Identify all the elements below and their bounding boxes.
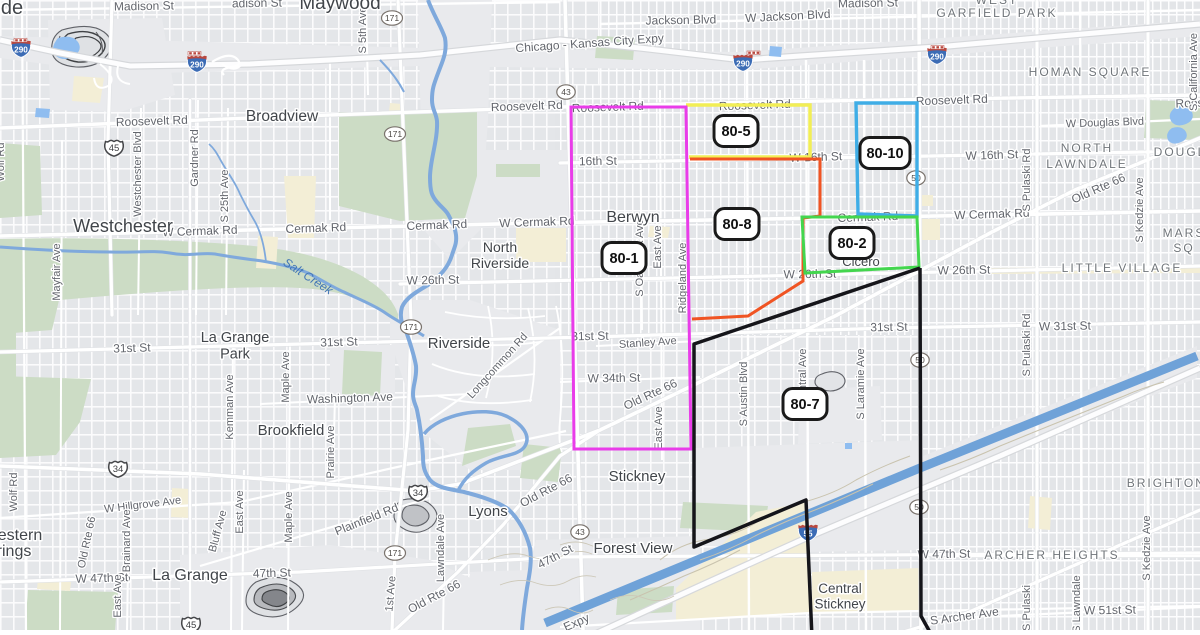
svg-text:W 47th St: W 47th St [917, 547, 971, 562]
svg-text:80-7: 80-7 [790, 397, 819, 413]
svg-text:W 31st St: W 31st St [1039, 319, 1092, 334]
svg-text:W 51st St: W 51st St [1084, 603, 1137, 618]
svg-text:GARFIELD PARK: GARFIELD PARK [936, 6, 1057, 20]
svg-text:Central: Central [818, 581, 862, 596]
svg-text:31st St: 31st St [113, 340, 151, 355]
svg-text:31st St: 31st St [571, 329, 609, 344]
svg-text:HOMAN SQUARE: HOMAN SQUARE [1029, 65, 1152, 79]
svg-text:43: 43 [561, 87, 571, 97]
svg-text:290: 290 [736, 60, 750, 69]
svg-text:Madison St: Madison St [114, 0, 175, 14]
svg-text:S Lawndale: S Lawndale [1071, 575, 1083, 630]
svg-text:31st St: 31st St [870, 320, 908, 335]
svg-text:East Ave: East Ave [653, 406, 665, 449]
svg-text:171: 171 [404, 322, 419, 332]
svg-text:La Grange: La Grange [152, 567, 228, 584]
svg-text:Cermak Rd: Cermak Rd [406, 217, 467, 233]
svg-text:Madison St: Madison St [838, 0, 899, 11]
svg-text:Gardner Rd: Gardner Rd [189, 129, 201, 186]
svg-text:Maple Ave: Maple Ave [280, 351, 292, 402]
svg-text:80-5: 80-5 [721, 124, 750, 140]
svg-text:Roosevelt Rd: Roosevelt Rd [116, 113, 188, 130]
svg-text:Berwyn: Berwyn [606, 209, 659, 226]
svg-text:S Pulaski Rd: S Pulaski Rd [1021, 314, 1033, 377]
svg-text:W Cermak Rd: W Cermak Rd [499, 214, 575, 231]
svg-text:Westchester: Westchester [73, 216, 173, 236]
svg-text:34: 34 [413, 488, 424, 499]
svg-text:North: North [483, 239, 517, 255]
svg-text:Park: Park [220, 347, 251, 363]
svg-text:W Cermak Rd: W Cermak Rd [954, 206, 1030, 223]
svg-text:Wolf Rd: Wolf Rd [8, 473, 20, 512]
svg-text:LITTLE VILLAGE: LITTLE VILLAGE [1062, 261, 1183, 275]
svg-text:rings: rings [0, 543, 31, 560]
svg-text:East Ave: East Ave [652, 225, 664, 268]
svg-text:Brookfield: Brookfield [258, 422, 325, 439]
svg-text:S Kedzie Ave: S Kedzie Ave [1141, 515, 1153, 580]
svg-text:S Pulaski Rd: S Pulaski Rd [1021, 149, 1033, 212]
svg-text:43: 43 [575, 527, 585, 537]
svg-text:estern: estern [0, 527, 42, 544]
svg-text:S Pulaski: S Pulaski [1021, 585, 1033, 630]
svg-text:80-2: 80-2 [837, 236, 866, 252]
svg-text:S Austin Blvd: S Austin Blvd [738, 362, 750, 427]
svg-text:Forest View: Forest View [594, 540, 673, 557]
svg-text:East Ave: East Ave [234, 490, 246, 533]
svg-text:Wolf Rd: Wolf Rd [0, 143, 7, 182]
svg-text:BRIGHTON P: BRIGHTON P [1127, 476, 1200, 490]
svg-text:47th St: 47th St [253, 565, 292, 580]
svg-text:adison St: adison St [232, 0, 283, 10]
svg-text:171: 171 [388, 129, 403, 139]
svg-text:DOUGLA: DOUGLA [1154, 145, 1200, 159]
svg-text:W Cermak Rd: W Cermak Rd [162, 223, 238, 240]
svg-text:290: 290 [14, 46, 28, 55]
svg-text:31st St: 31st St [320, 334, 358, 349]
svg-text:Lawndale Ave: Lawndale Ave [435, 514, 447, 582]
svg-text:290: 290 [190, 61, 204, 70]
svg-text:ARCHER HEIGHTS: ARCHER HEIGHTS [984, 548, 1119, 562]
svg-text:Broadview: Broadview [246, 108, 319, 125]
svg-text:S Kedzie Ave: S Kedzie Ave [1134, 177, 1146, 242]
svg-text:171: 171 [385, 13, 400, 23]
svg-text:171: 171 [388, 548, 403, 558]
svg-text:LAWNDALE: LAWNDALE [1046, 157, 1128, 171]
svg-text:Maple Ave: Maple Ave [283, 491, 295, 542]
svg-text:45: 45 [186, 620, 197, 630]
svg-text:La Grange: La Grange [201, 330, 270, 346]
svg-text:34: 34 [113, 464, 124, 475]
svg-text:290: 290 [930, 53, 944, 62]
svg-text:W 26th St: W 26th St [406, 273, 460, 288]
svg-text:Kemman Ave: Kemman Ave [224, 374, 236, 439]
svg-text:Riverside: Riverside [428, 335, 491, 352]
svg-text:Riverside: Riverside [471, 255, 530, 271]
svg-text:NORTH: NORTH [1061, 141, 1113, 155]
svg-text:Prairie Ave: Prairie Ave [325, 426, 337, 479]
svg-text:Stickney: Stickney [814, 597, 865, 612]
svg-text:Cermak Rd: Cermak Rd [285, 220, 346, 236]
svg-text:S Laramie Ave: S Laramie Ave [855, 348, 867, 419]
svg-text:S California Ave: S California Ave [1188, 33, 1200, 111]
svg-text:Maywood: Maywood [299, 0, 380, 14]
svg-text:Roosevelt Rd: Roosevelt Rd [491, 98, 563, 115]
svg-text:Westchester Blvd: Westchester Blvd [132, 131, 144, 216]
svg-text:East Ave: East Ave [112, 574, 124, 617]
svg-text:Mayfair Ave: Mayfair Ave [51, 243, 63, 300]
svg-text:80-10: 80-10 [866, 146, 903, 162]
svg-text:SQ: SQ [1173, 241, 1194, 255]
svg-text:Stickney: Stickney [609, 468, 666, 485]
svg-text:Roosevelt Rd: Roosevelt Rd [916, 92, 988, 109]
svg-text:Lyons: Lyons [468, 503, 507, 520]
svg-text:80-1: 80-1 [609, 251, 638, 267]
svg-text:Jackson Blvd: Jackson Blvd [645, 12, 716, 27]
svg-text:S 25th Ave: S 25th Ave [219, 169, 231, 222]
svg-text:de: de [1, 0, 23, 19]
svg-text:W 34th St: W 34th St [587, 371, 641, 386]
svg-text:80-8: 80-8 [722, 217, 751, 233]
svg-text:W 16th St: W 16th St [965, 147, 1019, 163]
svg-text:W 26th St: W 26th St [937, 263, 991, 278]
svg-text:45: 45 [109, 143, 120, 154]
svg-text:16th St: 16th St [579, 154, 618, 169]
svg-text:MARS: MARS [1163, 226, 1200, 240]
